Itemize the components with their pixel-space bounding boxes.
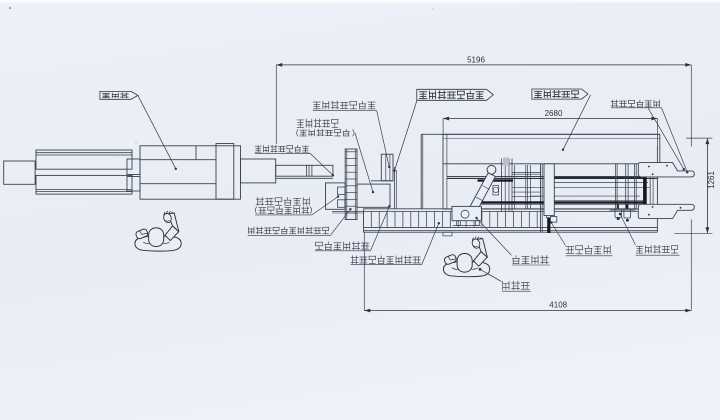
svg-text:1261: 1261 xyxy=(707,171,716,189)
svg-text:4108: 4108 xyxy=(549,301,567,310)
svg-text:5196: 5196 xyxy=(467,56,485,65)
svg-text:2680: 2680 xyxy=(545,109,563,118)
